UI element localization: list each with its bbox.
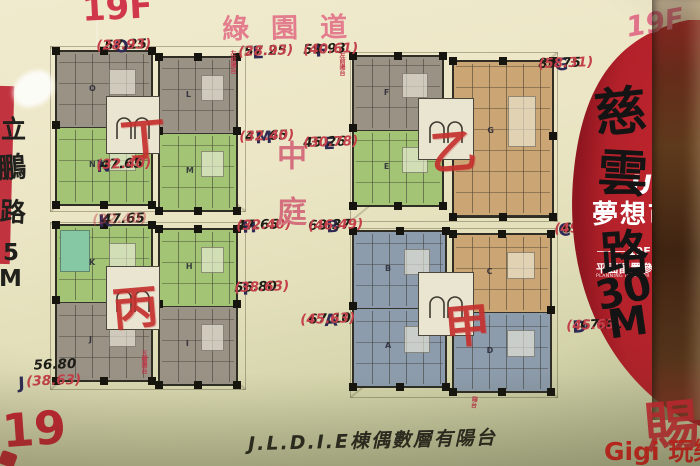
road-width-5: 5: [3, 240, 19, 266]
unit-net-sqm: (30.78): [303, 135, 358, 151]
ciyun-char-yun: 雲: [596, 133, 650, 208]
building-char-yi: 乙: [427, 114, 479, 184]
unit-net-sqm: (28.93): [238, 44, 293, 60]
road-width-m: M: [0, 266, 22, 292]
unit-net-sqm: (46.49): [308, 218, 363, 234]
unit-net-sqm: (38.63): [234, 280, 289, 296]
unit-net-sqm: (28.93): [96, 38, 151, 54]
photo-floorplan-poster: O N L M 丁 F E G 乙 K J H I 丙 B A C D: [0, 0, 700, 466]
road-char-lu: 路: [0, 191, 27, 229]
plan-note-bl: 五樓陽台: [140, 350, 147, 374]
courtyard-label: 中庭: [272, 140, 304, 252]
road-width-m2: M: [605, 297, 651, 348]
unit-net-sqm: (32.40): [96, 157, 151, 173]
unit-net-sqm: (58.31): [538, 56, 593, 72]
red-circle-poster: [0, 0, 700, 466]
building-char-bing: 丙: [109, 270, 161, 340]
unit-id: J: [18, 376, 25, 394]
floor-note-bottom-left: 19: [0, 400, 68, 458]
unit-net-sqm: (32.40): [92, 212, 147, 228]
road-char-li: 立: [1, 110, 26, 146]
floor-note-top-left: 19F: [81, 0, 154, 30]
gigi-watermark: Gigi 玩樂家: [604, 432, 700, 466]
road-char-peng: 鵬: [0, 145, 27, 187]
unit-area-sqm: 56.80: [33, 358, 76, 373]
building-char-jia: 甲: [441, 288, 493, 358]
board-edge-strip: [652, 0, 700, 420]
unit-note-L: 左前陽台: [229, 50, 236, 74]
green-boulevard-label: 綠園道: [222, 5, 370, 47]
unit-note-F: 左前陽台: [338, 52, 345, 76]
unit-net-sqm: (38.63): [26, 374, 81, 390]
unit-net-sqm: (45.63): [300, 312, 355, 328]
